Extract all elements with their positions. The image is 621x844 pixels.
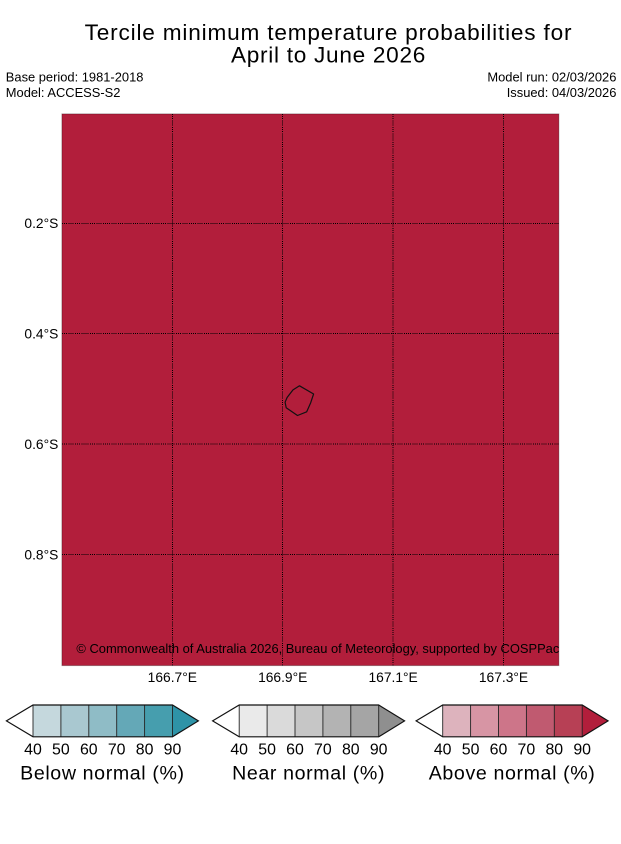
svg-text:50: 50 (258, 742, 276, 759)
svg-text:60: 60 (490, 742, 508, 759)
svg-text:40: 40 (434, 742, 452, 759)
svg-text:Model: ACCESS-S2: Model: ACCESS-S2 (6, 85, 121, 100)
svg-text:Model run: 02/03/2026: Model run: 02/03/2026 (487, 70, 616, 85)
svg-text:70: 70 (108, 742, 126, 759)
svg-text:70: 70 (518, 742, 536, 759)
svg-text:© Commonwealth of Australia 20: © Commonwealth of Australia 2026, Bureau… (76, 641, 621, 656)
svg-text:0.4°S: 0.4°S (24, 327, 58, 342)
svg-text:50: 50 (462, 742, 480, 759)
svg-text:167.3°E: 167.3°E (479, 670, 528, 685)
svg-text:40: 40 (24, 742, 42, 759)
svg-text:0.2°S: 0.2°S (24, 216, 58, 231)
svg-text:166.9°E: 166.9°E (258, 670, 307, 685)
svg-text:90: 90 (370, 742, 388, 759)
svg-text:60: 60 (80, 742, 98, 759)
svg-text:0.8°S: 0.8°S (24, 547, 58, 562)
svg-text:80: 80 (136, 742, 154, 759)
svg-text:Base period: 1981-2018: Base period: 1981-2018 (6, 70, 144, 85)
svg-text:April to June 2026: April to June 2026 (231, 43, 426, 68)
svg-text:167.1°E: 167.1°E (368, 670, 417, 685)
svg-text:90: 90 (164, 742, 182, 759)
svg-text:80: 80 (342, 742, 360, 759)
svg-text:80: 80 (545, 742, 563, 759)
svg-text:Issued: 04/03/2026: Issued: 04/03/2026 (507, 85, 617, 100)
svg-text:Above normal (%): Above normal (%) (429, 762, 596, 784)
svg-text:Tercile minimum temperature pr: Tercile minimum temperature probabilitie… (85, 20, 573, 45)
svg-text:70: 70 (314, 742, 332, 759)
svg-text:0.6°S: 0.6°S (24, 437, 58, 452)
svg-text:90: 90 (573, 742, 591, 759)
svg-text:166.7°E: 166.7°E (148, 670, 197, 685)
svg-text:40: 40 (230, 742, 248, 759)
svg-text:60: 60 (286, 742, 304, 759)
svg-text:Below normal (%): Below normal (%) (20, 762, 185, 784)
svg-text:50: 50 (52, 742, 70, 759)
svg-text:Near normal (%): Near normal (%) (232, 762, 385, 784)
